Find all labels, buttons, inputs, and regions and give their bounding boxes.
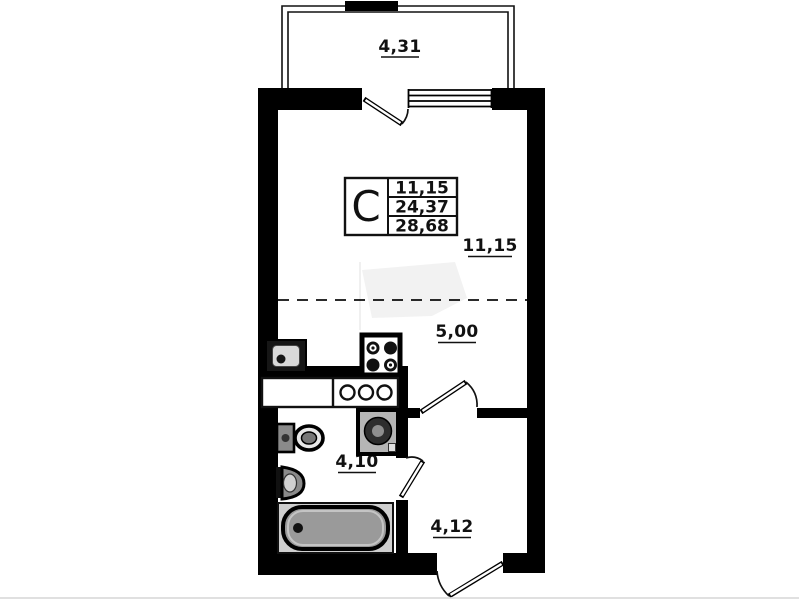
- wall-bottom-left: [258, 553, 437, 575]
- hallway-area-label: 4,12: [430, 517, 473, 537]
- floor-plan-drawing: С 11,15 24,37 28,68 4,31 11,15 5,00 4,10…: [0, 0, 799, 600]
- room-hall-door: [421, 382, 477, 412]
- kitchen-area-label: 5,00: [435, 322, 478, 342]
- entrance-door: [437, 563, 503, 596]
- balcony-door: [364, 99, 408, 124]
- bathroom-door: [401, 457, 423, 497]
- unit-area-row-3: 28,68: [395, 217, 449, 237]
- kitchen-sink-unit: [266, 340, 306, 372]
- balcony-top-wall-segment: [345, 1, 398, 11]
- wall-bath-right-lower: [396, 500, 408, 553]
- floor-plan-page: С 11,15 24,37 28,68 4,31 11,15 5,00 4,10…: [0, 0, 799, 600]
- unit-type-letter: С: [351, 182, 380, 231]
- unit-info-table: С 11,15 24,37 28,68: [345, 178, 457, 237]
- balcony-area-label: 4,31: [378, 37, 421, 57]
- living-area-label: 11,15: [462, 236, 517, 256]
- wall-top-left: [258, 88, 362, 110]
- wall-left: [258, 88, 278, 575]
- wall-right: [527, 88, 545, 553]
- wall-bottom-right: [503, 553, 545, 573]
- bathtub-drain: [293, 523, 303, 533]
- page-bottom-edge: [0, 597, 799, 599]
- toilet: [277, 424, 323, 452]
- window: [408, 89, 492, 108]
- washbasin: [276, 467, 304, 499]
- unit-area-row-2: 24,37: [395, 198, 449, 218]
- faint-smudge: [360, 262, 467, 330]
- stove: [362, 335, 400, 375]
- unit-area-row-1: 11,15: [395, 179, 449, 199]
- vent-duct-block: [262, 378, 398, 407]
- bathtub: [278, 503, 393, 553]
- wall-hall-top-right: [477, 408, 530, 418]
- walls: [258, 88, 545, 575]
- washing-machine: [358, 410, 398, 454]
